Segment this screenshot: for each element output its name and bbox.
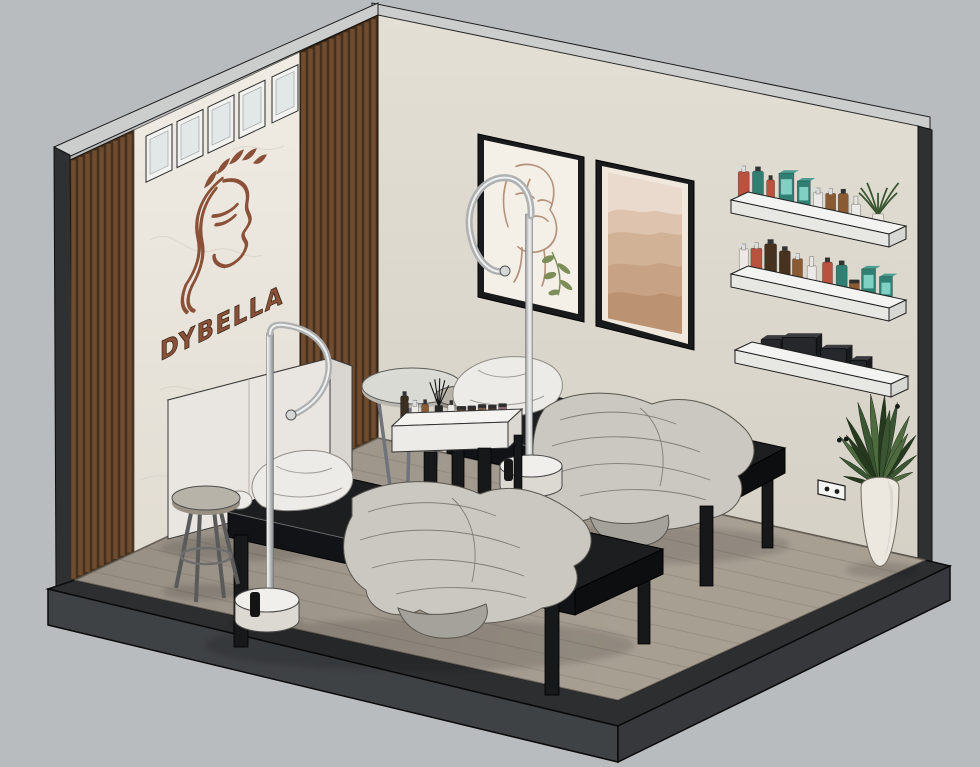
product-spout [737,244,742,247]
product-jar-lid [478,404,486,408]
product-pump [829,189,833,195]
product-spout [750,243,755,246]
product-jar-lid [468,406,476,410]
plant-berry [837,438,842,443]
product-cap [755,167,761,172]
lamp-head [500,266,510,276]
product-cap [768,239,774,244]
product-pump [742,244,746,250]
product-cap [839,261,845,266]
product-cap [403,391,407,396]
wall-art-dunes [596,160,694,350]
lamp-base [235,588,299,612]
outlet-socket [835,489,840,494]
product-pump [754,243,758,249]
plant-berry [844,437,849,442]
lamp-base-clip [250,592,260,617]
product-box-label [864,275,874,289]
product-box-label [781,179,792,194]
product-cap [841,189,846,194]
product-spout [824,189,829,192]
product-pump [413,400,417,406]
product-jar-lid [488,405,496,409]
product-box-label [881,283,890,295]
product-pump [795,254,799,260]
product-cap [769,175,773,180]
lamp-head [286,410,296,420]
salon-scene: DYBELLA [0,0,980,767]
right-wall-cut-edge [918,126,932,566]
product-spout [408,400,413,403]
product-spout [812,188,817,191]
blanket [344,482,592,624]
product-nozzle [854,196,858,204]
trolley-front-panel [392,422,508,452]
product-pump [742,166,746,172]
product-jar-lid [849,280,859,284]
product-spout [737,166,742,169]
art-dunes-drawing [608,172,682,334]
plant-berry [895,404,900,409]
product-cap [423,399,427,404]
product-nozzle [810,257,814,267]
stool-seat [172,486,240,510]
product-cap [450,400,454,405]
product-jar-lid [457,406,466,410]
bed-leg [700,506,713,586]
isometric-salon-render: DYBELLA [0,0,980,767]
product-jar-lid [499,404,507,408]
product-cap [825,258,830,263]
lamp-pole [526,214,533,470]
product-pump [816,188,820,194]
product-spout [791,254,796,257]
bed-leg [545,603,559,695]
lamp-base-clip [504,459,513,481]
product-box-label [799,187,808,201]
towel-top [782,333,822,337]
lamp-pole [267,333,274,603]
outlet-socket [825,487,830,492]
product-cap [782,246,788,251]
wood-slats-left [74,134,130,579]
